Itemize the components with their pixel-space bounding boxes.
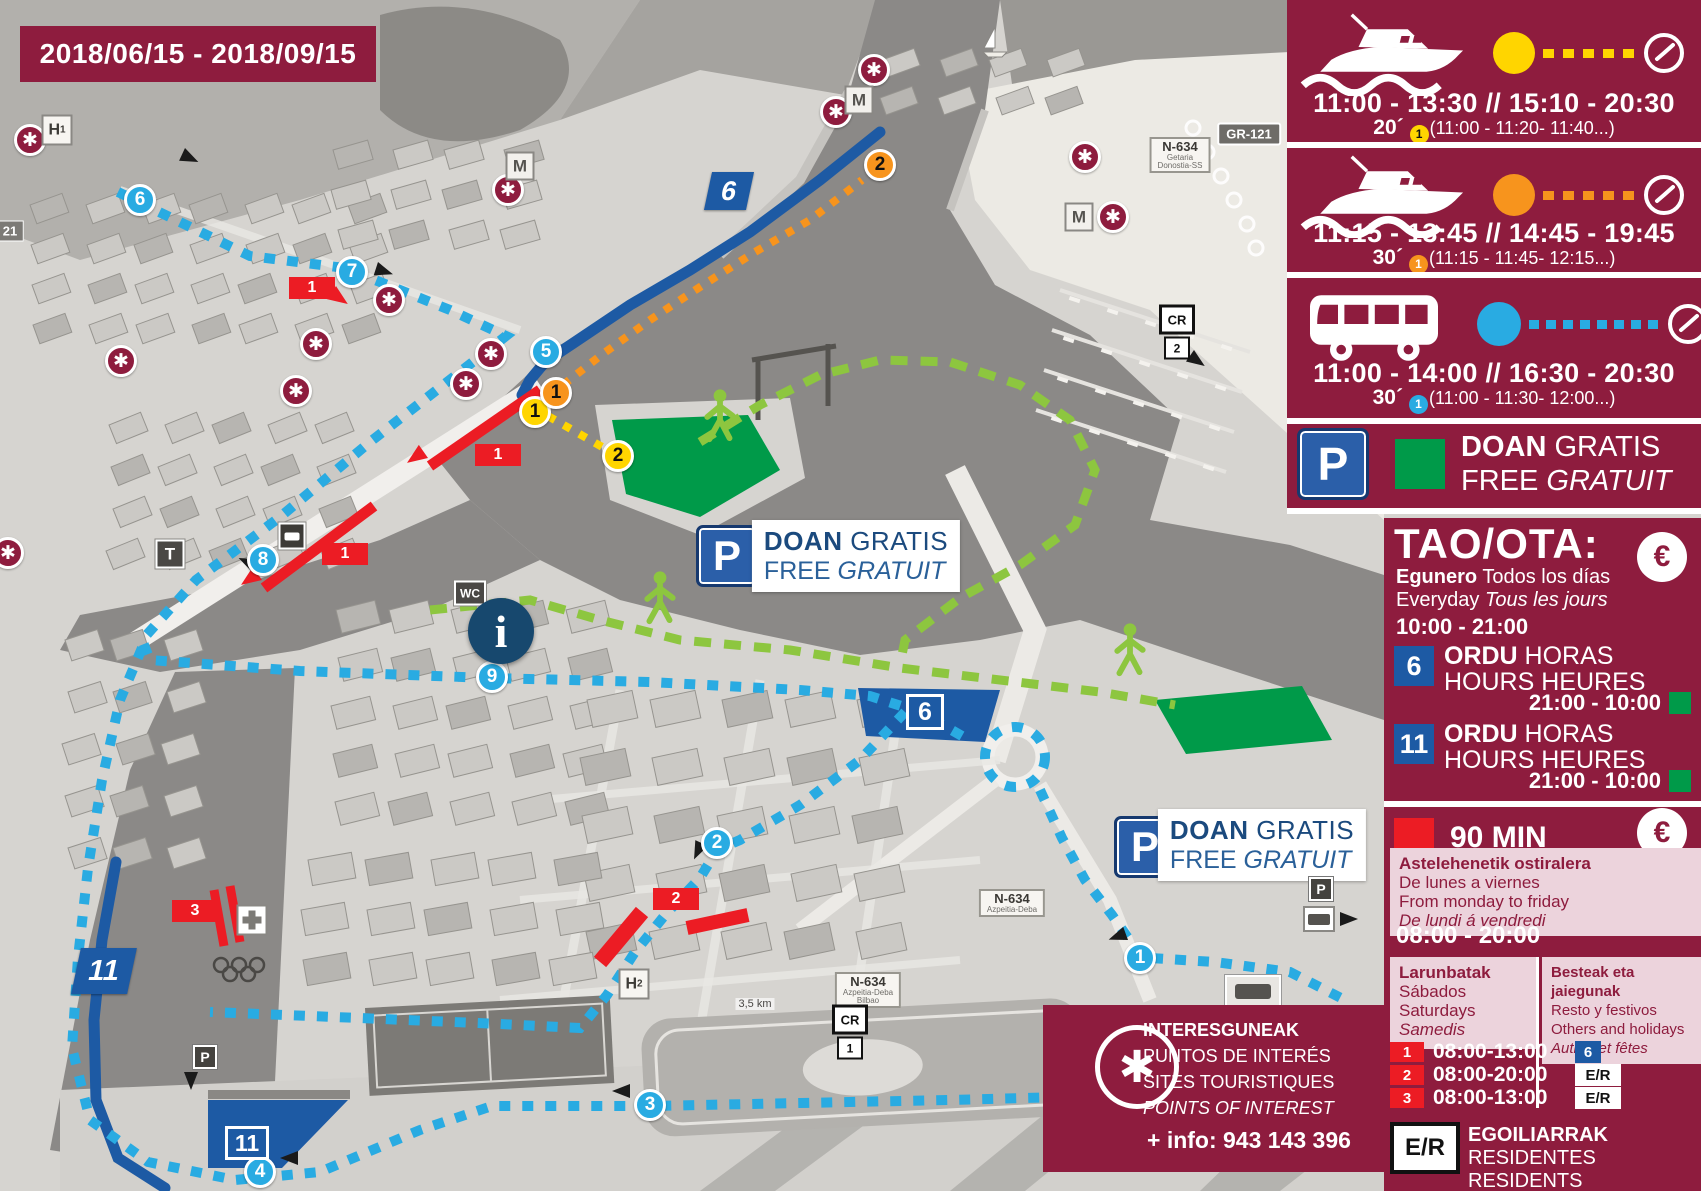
zone-11-night-hours: 21:00 - 10:00 [1529, 768, 1691, 794]
sailboat-icon [982, 26, 1008, 58]
hsign-h-marker[interactable]: H2 [619, 969, 650, 1000]
zone-row-3: 3 08:00-13:00 E/R [1390, 1086, 1621, 1110]
wc-wc-marker[interactable]: WC [454, 581, 486, 606]
flag-11-marker: 11 [71, 948, 137, 994]
bus-icon [1299, 284, 1449, 364]
zone-6-night-hours: 21:00 - 10:00 [1529, 690, 1691, 716]
euro-icon: € [1637, 532, 1687, 582]
redbox-1-marker: 1 [322, 543, 368, 565]
stop-4-marker[interactable]: 4 [244, 1156, 276, 1188]
stop-9-marker[interactable]: 9 [476, 661, 508, 693]
free-night-swatch [1669, 770, 1691, 792]
sidebar-parking-panel: TAO/OTA: € Egunero Todos los días Everyd… [1384, 518, 1701, 1191]
poi-asterisk-marker[interactable]: ✱ [475, 338, 507, 370]
tao-everyday-es: Egunero Todos los días [1396, 566, 1610, 589]
info-i-marker[interactable]: i [468, 598, 534, 664]
zone-6-badge: 6 [1394, 646, 1434, 686]
clock-icon [1642, 173, 1686, 217]
poi-line-es: PUNTOS DE INTERÉS [1143, 1043, 1334, 1069]
poi-asterisk-marker[interactable]: ✱ [1097, 201, 1129, 233]
redbox-2-marker: 2 [653, 888, 699, 910]
orange-line-dot [1493, 174, 1535, 216]
stop-1-icon: 1 [1409, 395, 1428, 414]
boat1-frequency: 20´1(11:00 - 11:20- 11:40...) [1287, 116, 1701, 144]
roaddark-gr-121-marker: GR-121 [1217, 123, 1281, 146]
zone-row-1: 1 08:00-13:00 6 [1390, 1040, 1601, 1064]
pedestrian-icon [642, 570, 678, 630]
camper-marker[interactable] [1303, 906, 1335, 932]
poi-line-fr: SITES TOURISTIQUES [1143, 1069, 1334, 1095]
stop-2-marker[interactable]: 2 [864, 149, 896, 181]
stop-7-marker[interactable]: 7 [336, 256, 368, 288]
hsign-h-marker[interactable]: H1 [42, 115, 73, 146]
sq-m-marker[interactable]: M [845, 86, 874, 115]
redbox-1-marker: 1 [475, 444, 521, 466]
tao-everyday-en: Everyday Tous les jours [1396, 589, 1608, 612]
boat2-schedule: 11:15 - 13:45 // 14:45 - 19:45 [1287, 218, 1701, 249]
stop-2-marker[interactable]: 2 [602, 440, 634, 472]
boat2-frequency: 30´1(11:15 - 11:45- 12:15...) [1287, 246, 1701, 274]
zonebox-6-marker: 6 [906, 694, 944, 730]
darksq-t-marker[interactable]: T [156, 540, 185, 569]
psmall-p-marker[interactable]: P [193, 1045, 217, 1069]
stop-3-marker[interactable]: 3 [634, 1089, 666, 1121]
free-zone-color-swatch [1395, 439, 1445, 489]
stop-1-marker[interactable]: 1 [1124, 942, 1156, 974]
free-parking-row: P DOAN GRATIS FREE GRATUIT [1297, 428, 1672, 500]
olympic-rings-icon [211, 955, 267, 985]
flag-6-marker: 6 [704, 172, 754, 210]
road-sign-n-634: N-634GetariaDonostia-SS [1150, 137, 1211, 173]
zone-row-2: 2 08:00-20:00 E/R [1390, 1063, 1621, 1087]
redbox-3-marker: 3 [172, 900, 218, 922]
stop-2-marker[interactable]: 2 [701, 827, 733, 859]
redbox-1-marker: 1 [289, 277, 335, 299]
poi-asterisk-marker[interactable]: ✱ [0, 537, 24, 569]
yellow-dashes [1543, 49, 1634, 58]
poi-asterisk-marker[interactable]: ✱ [373, 284, 405, 316]
points-of-interest-panel: ✱ INTERESGUNEAK PUNTOS DE INTERÉS SITES … [1043, 1005, 1384, 1172]
orange-dashes [1543, 191, 1634, 200]
road-sign-n-634: N-634Azpeitia-Deba [979, 889, 1045, 917]
90min-weekday-hours: 08:00 - 20:00 [1396, 922, 1540, 950]
coastal-route-sign-2: CR2 [1159, 305, 1195, 360]
boat-icon [1299, 10, 1469, 96]
tao-day-hours: 10:00 - 21:00 [1396, 614, 1528, 640]
poi-line-en: POINTS OF INTEREST [1143, 1095, 1334, 1121]
poi-asterisk-marker[interactable]: ✱ [858, 54, 890, 86]
blue-line-dot [1477, 302, 1521, 346]
poi-asterisk-marker[interactable]: ✱ [105, 345, 137, 377]
stop-8-marker[interactable]: 8 [247, 544, 279, 576]
parking-sign-icon: P [1297, 428, 1369, 500]
poi-title: INTERESGUNEAK [1143, 1017, 1334, 1043]
sidebar-transport-panel: 11:00 - 13:30 // 15:10 - 20:30 20´1(11:0… [1287, 0, 1701, 514]
residents-legend: E/R EGOILIARRAK RESIDENTES RESIDENTS ONL… [1384, 1122, 1701, 1182]
station-marker[interactable] [1225, 975, 1281, 1007]
km-3,5 km-marker: 3,5 km [735, 998, 774, 1010]
poi-asterisk-marker[interactable]: ✱ [450, 368, 482, 400]
residents-badge: E/R [1390, 1122, 1460, 1174]
clock-icon [1666, 302, 1701, 346]
road-sign-n-634: N-634Azpeitia-DebaBilbao [835, 972, 901, 1008]
date-range-badge: 2018/06/15 - 2018/09/15 [20, 26, 376, 82]
bus-frequency: 30´1(11:00 - 11:30- 12:00...) [1287, 386, 1701, 414]
tourist-map-page: 123456789121211123✱✱✱✱✱✱✱✱✱✱✱✱✱MMMH1H2TW… [0, 0, 1701, 1191]
sq-m-marker[interactable]: M [1065, 203, 1094, 232]
zone-11-badge: 11 [1394, 724, 1434, 764]
aid-marker [237, 905, 268, 936]
stop-1-icon: 1 [1409, 255, 1428, 274]
boat1-icon-row [1299, 10, 1686, 96]
tao-title: TAO/OTA: [1394, 520, 1599, 568]
boat1-schedule: 11:00 - 13:30 // 15:10 - 20:30 [1287, 88, 1701, 119]
zone-6-hours-label: ORDU HORAS HOURS HEURES [1444, 643, 1645, 695]
free-parking-label: DOAN GRATISFREE GRATUIT [752, 520, 960, 592]
stop-5-marker[interactable]: 5 [530, 336, 562, 368]
poi-asterisk-marker[interactable]: ✱ [280, 375, 312, 407]
pedestrian-icon [1112, 622, 1148, 682]
saturday-box: Larunbatak Sábados Saturdays Samedis [1390, 957, 1536, 1049]
coastal-route-sign-1: CR1 [832, 1005, 868, 1060]
stop-6-marker[interactable]: 6 [124, 184, 156, 216]
bus-icon-row [1299, 284, 1701, 364]
sq-m-marker[interactable]: M [506, 152, 535, 181]
clock-icon [1642, 31, 1686, 75]
poi-info-phone: + info: 943 143 396 [1147, 1127, 1351, 1154]
free-parking-label: DOAN GRATISFREE GRATUIT [1158, 809, 1366, 881]
poi-asterisk-marker[interactable]: ✱ [1069, 141, 1101, 173]
busstop-marker[interactable] [279, 523, 306, 550]
stop-1-icon: 1 [1410, 125, 1429, 144]
pbig-p-marker[interactable]: P [696, 525, 758, 587]
psmall-p-marker[interactable]: P [1309, 877, 1333, 901]
zonebox-11-marker: 11 [225, 1126, 269, 1160]
poi-asterisk-marker[interactable]: ✱ [300, 328, 332, 360]
bus-schedule: 11:00 - 14:00 // 16:30 - 20:30 [1287, 358, 1701, 389]
yellow-line-dot [1493, 32, 1535, 74]
blue-dashes [1529, 320, 1658, 329]
tag21-21-marker: 21 [0, 221, 24, 242]
zone-11-hours-label: ORDU HORAS HOURS HEURES [1444, 721, 1645, 773]
pedestrian-icon [702, 388, 738, 448]
free-night-swatch [1669, 692, 1691, 714]
stop-1-marker[interactable]: 1 [540, 377, 572, 409]
